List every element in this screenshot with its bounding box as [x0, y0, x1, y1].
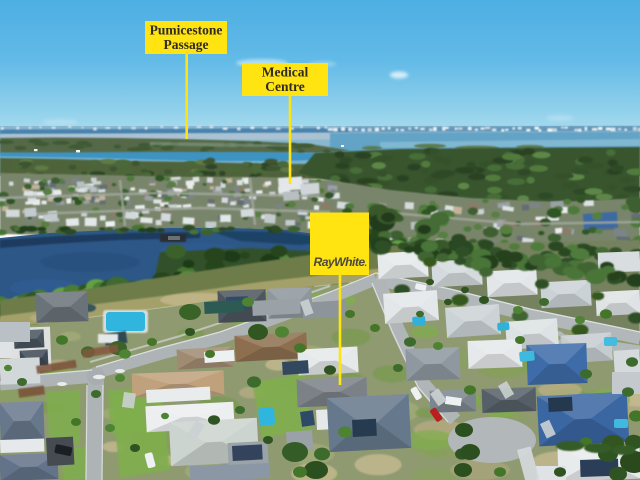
svg-text:Pumicestone: Pumicestone: [150, 23, 223, 38]
svg-text:Centre: Centre: [265, 79, 305, 94]
svg-text:Passage: Passage: [164, 37, 209, 52]
svg-text:RayWhite.: RayWhite.: [313, 255, 366, 269]
svg-text:Medical: Medical: [262, 65, 309, 80]
